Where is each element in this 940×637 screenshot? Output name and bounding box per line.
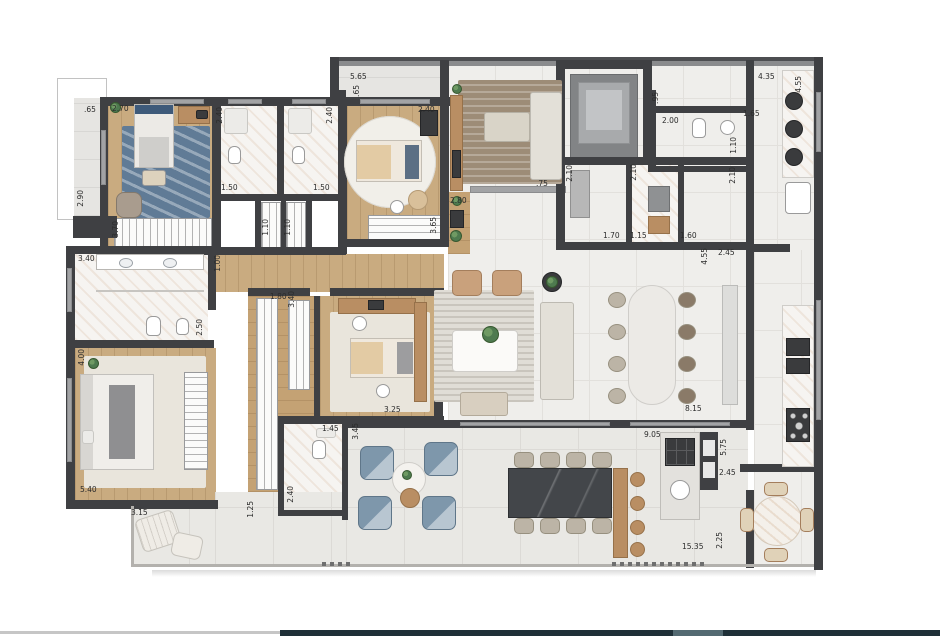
dimension-label: 1.10 (284, 219, 292, 236)
dimension-label: 2.40 (216, 107, 224, 124)
dimension-label: 1.10 (730, 137, 738, 154)
dimension-label: 3.70 (112, 221, 120, 238)
floor-plan-page: .652.702.401.502.401.502.903.701.101.105… (0, 0, 940, 637)
footer-rule-gray (0, 631, 280, 634)
dimension-label: 1.70 (603, 232, 620, 240)
dimension-label: 1.45 (322, 425, 339, 433)
dimension-label: 2.10 (729, 167, 737, 184)
dimension-label: 1.00 (214, 255, 222, 272)
dimension-label: 2.70 (112, 105, 129, 113)
dimension-label: 1.25 (247, 501, 255, 518)
dimension-label: 2.40 (418, 106, 435, 114)
dimension-label: 9.05 (644, 431, 661, 439)
dimension-label: 5.65 (350, 73, 367, 81)
dimension-label: 1.60 (680, 232, 697, 240)
dimension-label: 2.10 (630, 164, 638, 181)
dimension-label: 1.15 (630, 232, 647, 240)
dimension-label: 3.65 (430, 217, 438, 234)
dimension-label: 15.35 (682, 543, 703, 551)
dimension-label: .65 (84, 106, 96, 114)
dimension-labels-layer: .652.702.401.502.401.502.903.701.101.105… (0, 0, 940, 637)
dimension-label: .95 (652, 92, 660, 104)
dimension-label: 4.00 (78, 349, 86, 366)
dimension-label: 4.55 (795, 76, 803, 93)
dimension-label: 2.40 (326, 107, 334, 124)
dimension-label: 2.50 (196, 319, 204, 336)
dimension-label: 2.25 (716, 532, 724, 549)
dimension-label: 4.35 (758, 73, 775, 81)
dimension-label: 3.25 (384, 406, 401, 414)
dimension-label: 2.80 (450, 197, 467, 205)
dimension-label: 2.40 (287, 486, 295, 503)
dimension-label: 4.55 (701, 248, 709, 265)
footer-bar-teal (673, 630, 723, 636)
dimension-label: 5.75 (720, 439, 728, 456)
dimension-label: 3.40 (78, 255, 95, 263)
dimension-label: 1.50 (313, 184, 330, 192)
dimension-label: 8.15 (685, 405, 702, 413)
dimension-label: 2.00 (662, 117, 679, 125)
dimension-label: 2.90 (77, 190, 85, 207)
dimension-label: .75 (536, 180, 548, 188)
footer-bar-navy (280, 630, 940, 636)
dimension-label: 2.10 (566, 165, 574, 182)
dimension-label: 1.65 (743, 110, 760, 118)
dimension-label: 3.45 (352, 423, 360, 440)
dimension-label: 5.40 (80, 486, 97, 494)
dimension-label: 2.45 (719, 469, 736, 477)
dimension-label: 1.10 (262, 219, 270, 236)
dimension-label: 1.50 (221, 184, 238, 192)
dimension-label: 2.45 (718, 249, 735, 257)
dimension-label: 1.80 (270, 293, 287, 301)
dimension-label: 3.40 (288, 291, 296, 308)
dimension-label: .65 (353, 85, 361, 97)
dimension-label: 3.15 (131, 509, 148, 517)
